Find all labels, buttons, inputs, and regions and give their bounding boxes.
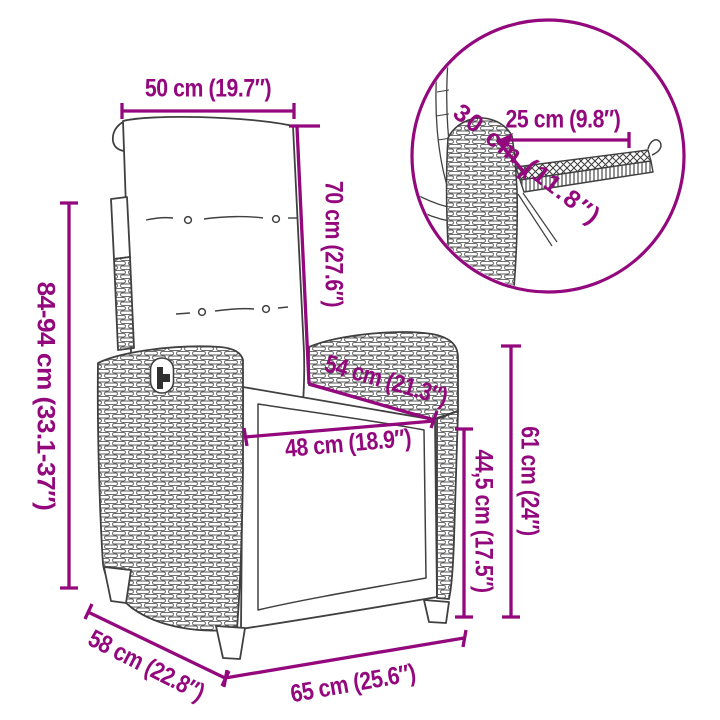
dim-label-back-width: 50 cm (19.7″) bbox=[145, 75, 271, 104]
dim-label-back-height: 70 cm (27.6″) bbox=[319, 181, 348, 307]
chair-leg bbox=[424, 600, 449, 623]
dim-label-footrest-length: 25 cm (9.8″) bbox=[506, 106, 621, 135]
chair-leg bbox=[104, 567, 131, 603]
recline-knob[interactable] bbox=[151, 358, 174, 393]
dim-label-overall-height: 84-94 cm (33.1-37″) bbox=[31, 282, 60, 511]
dim-label-armrest-height: 61 cm (24″) bbox=[515, 426, 544, 535]
product-dimension-diagram: 50 cm (19.7″) 70 cm (27.6″) 84-94 cm (33… bbox=[0, 0, 720, 720]
chair-leg bbox=[216, 626, 245, 659]
dim-label-seat-height: 44,5 cm (17.5″) bbox=[469, 449, 498, 592]
